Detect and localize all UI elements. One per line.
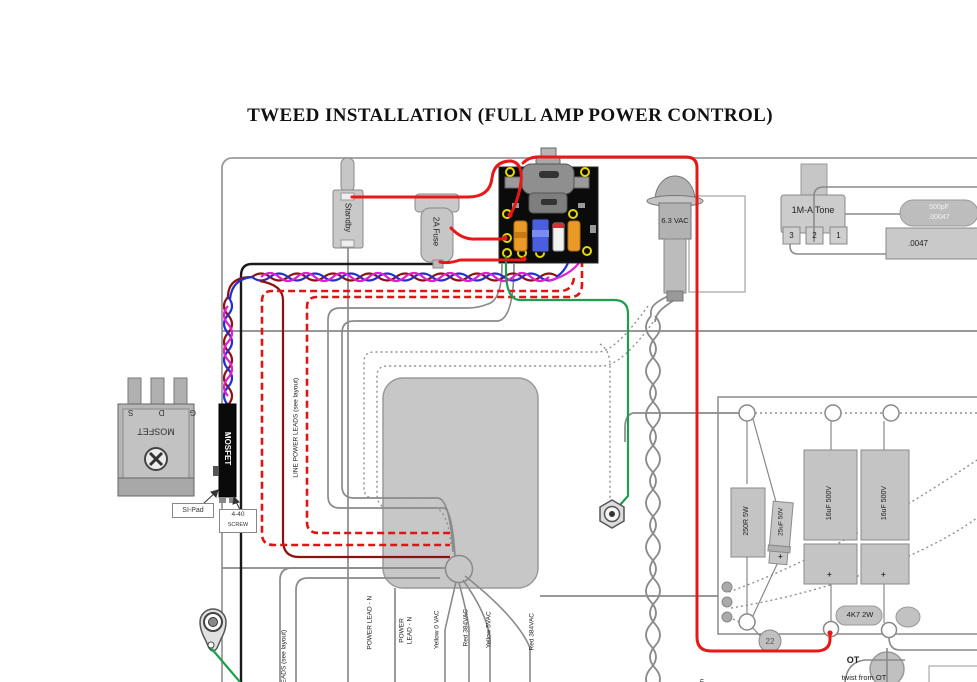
line-power-leads-label: LINE POWER LEADS (see layout) [292,368,299,488]
brown-wire-label: brown [698,668,705,682]
cap-500pf-label: 500pF .00047 [902,203,976,223]
power-lead-n-label: POWER LEAD - N [366,583,373,663]
resistor-4k7-label: 4K7 2W [832,611,888,620]
fuse-label: 2A Fuse [431,202,440,262]
cap-16uf-2-label: 16uF 500V [881,458,889,548]
pilot-label: 6.3 VAC [654,217,696,226]
twist-from-ot-label: twist from OT [828,674,900,682]
tone-terminal-1: 1 [830,231,847,240]
diagram-artwork [0,0,977,682]
cap-25uf-label: 25uF 50V [777,494,784,550]
red-384vac-label-1: Red 384VAC [462,593,469,663]
resistor-22-label: 22 [758,637,782,646]
mosfet-pin-s: S [128,408,133,417]
mosfet-pins: G D S [122,408,202,417]
mosfet-package-label: MOSFET [126,426,186,436]
cap-16uf-1-label: 16uF 500V [826,458,834,548]
red-384vac-label-2: Red 384VAC [528,597,535,667]
resistor-250r-label: 250R 5W [743,489,751,553]
cap-500pf-line2: .00047 [928,214,949,221]
screw-label-line2: SCREW [228,522,248,528]
tone-terminal-3: 3 [783,231,800,240]
standby-label: Standby [343,188,352,248]
cap-25uf-plus: + [778,552,783,561]
power-lead-n2-label: POWER LEAD - N [399,590,416,670]
screw-label: 4-40 SCREW [219,509,257,533]
screw-label-line1: 4-40 [231,511,244,518]
ot-label: OT [838,655,868,665]
yellow-0vac-label: Yellow 0 VAC [433,595,440,665]
si-pad-label: SI-Pad [172,503,214,518]
mosfet-pin-g: G [190,408,196,417]
power-lead-n2-line1: POWER [399,618,406,643]
resistor-partial [896,607,920,627]
wiring-diagram: TWEED INSTALLATION (FULL AMP POWER CONTR… [0,0,977,682]
mosfet-pin-d: D [159,408,165,417]
cap-500pf-line1: 500pF [929,204,949,211]
pcb-resistor-2 [568,221,580,251]
yellow-5vac-label: Yellow 5VAC [485,595,492,665]
mosfet-package [118,378,194,496]
power-lead-n2-line2: LEAD - N [407,617,414,644]
cut-label-box [929,666,977,682]
twisted-heater-pair [646,296,680,682]
mosfet-bar-label: MOSFET [223,413,232,484]
line-power-leads-bottom-label: LINE POWER LEADS (see layout) [280,621,287,682]
cap-16uf-1-plus: + [827,570,832,579]
cap-16uf-2-plus: + [881,570,886,579]
tone-pot-label: 1M-A Tone [781,205,845,215]
hex-ground-nut [600,500,624,528]
cap-0047-label: .0047 [888,239,948,248]
page-title: TWEED INSTALLATION (FULL AMP POWER CONTR… [170,105,850,127]
tone-terminal-2: 2 [806,231,823,240]
